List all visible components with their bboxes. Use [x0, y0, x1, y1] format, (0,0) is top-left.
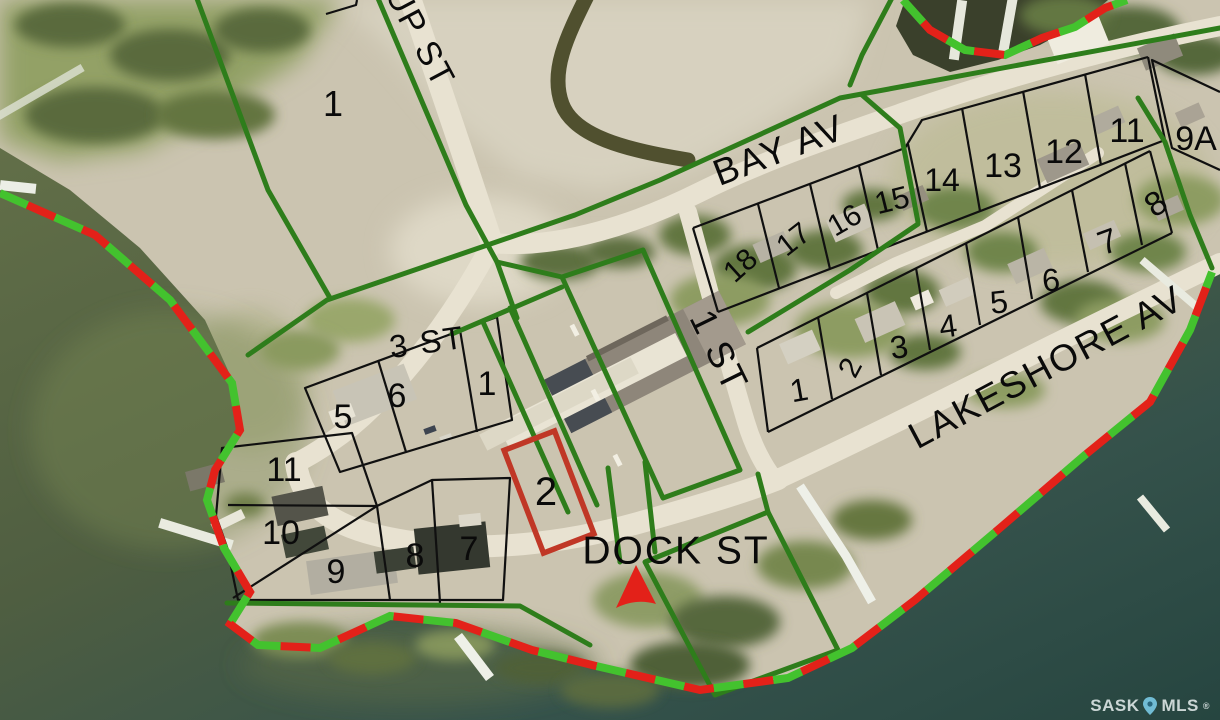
lot-number-b-11: 11 [266, 453, 301, 487]
lot-number-r1-9a: 9A [1175, 122, 1217, 156]
aerial-parcel-map: UP STBAY AV3 ST1 STDOCK STLAKESHORE AV15… [0, 0, 1220, 720]
lot-number-r1-16: 16 [823, 200, 867, 243]
watermark-sask: SASK [1090, 696, 1139, 716]
lot-number-r2-6: 6 [1040, 263, 1061, 297]
street-label-lakeshore-av: LAKESHORE AV [903, 279, 1190, 455]
map-labels: UP STBAY AV3 ST1 STDOCK STLAKESHORE AV15… [0, 0, 1220, 720]
lot-number-r1-17: 17 [772, 218, 817, 262]
lot-number-b-10: 10 [262, 516, 300, 550]
lot-number-r1-18: 18 [719, 244, 764, 289]
lot-number-a-6: 6 [388, 379, 407, 413]
lot-number-r1-14: 14 [924, 164, 960, 196]
watermark-mls: MLS [1161, 696, 1198, 716]
lot-number-b-7: 7 [460, 532, 479, 566]
street-label-3-st: 3 ST [387, 321, 466, 363]
lot-number-r2-7: 7 [1093, 223, 1122, 261]
lot-number-r2-4: 4 [937, 309, 959, 343]
lot-number-r2-3: 3 [888, 330, 910, 364]
lot-number-r2-2: 2 [834, 354, 868, 383]
street-label-bay-av: BAY AV [708, 108, 850, 192]
saskmls-watermark: SASK MLS® [1090, 696, 1210, 716]
lot-number-r1-13: 13 [984, 149, 1022, 183]
lot-number-b-9: 9 [327, 555, 346, 589]
lot-number-a-1: 1 [478, 367, 497, 401]
registered-mark: ® [1203, 701, 1210, 711]
street-label-up-st: UP ST [379, 0, 460, 93]
street-label-dock-st: DOCK ST [582, 532, 769, 571]
street-label-1-st: 1 ST [683, 304, 754, 398]
lot-number-r1-15: 15 [872, 181, 913, 219]
lot-number-r2-8: 8 [1139, 185, 1174, 224]
map-pin-icon [1143, 697, 1157, 715]
lot-number-highlight-2: 2 [535, 472, 557, 512]
lot-number-nw-1: 1 [323, 86, 343, 122]
lot-number-a-5: 5 [334, 400, 353, 434]
lot-number-r2-5: 5 [988, 285, 1009, 319]
lot-number-b-8: 8 [406, 539, 425, 573]
lot-number-r1-12: 12 [1045, 135, 1083, 169]
lot-number-r2-1: 1 [787, 373, 810, 408]
lot-number-r1-11: 11 [1109, 114, 1144, 148]
